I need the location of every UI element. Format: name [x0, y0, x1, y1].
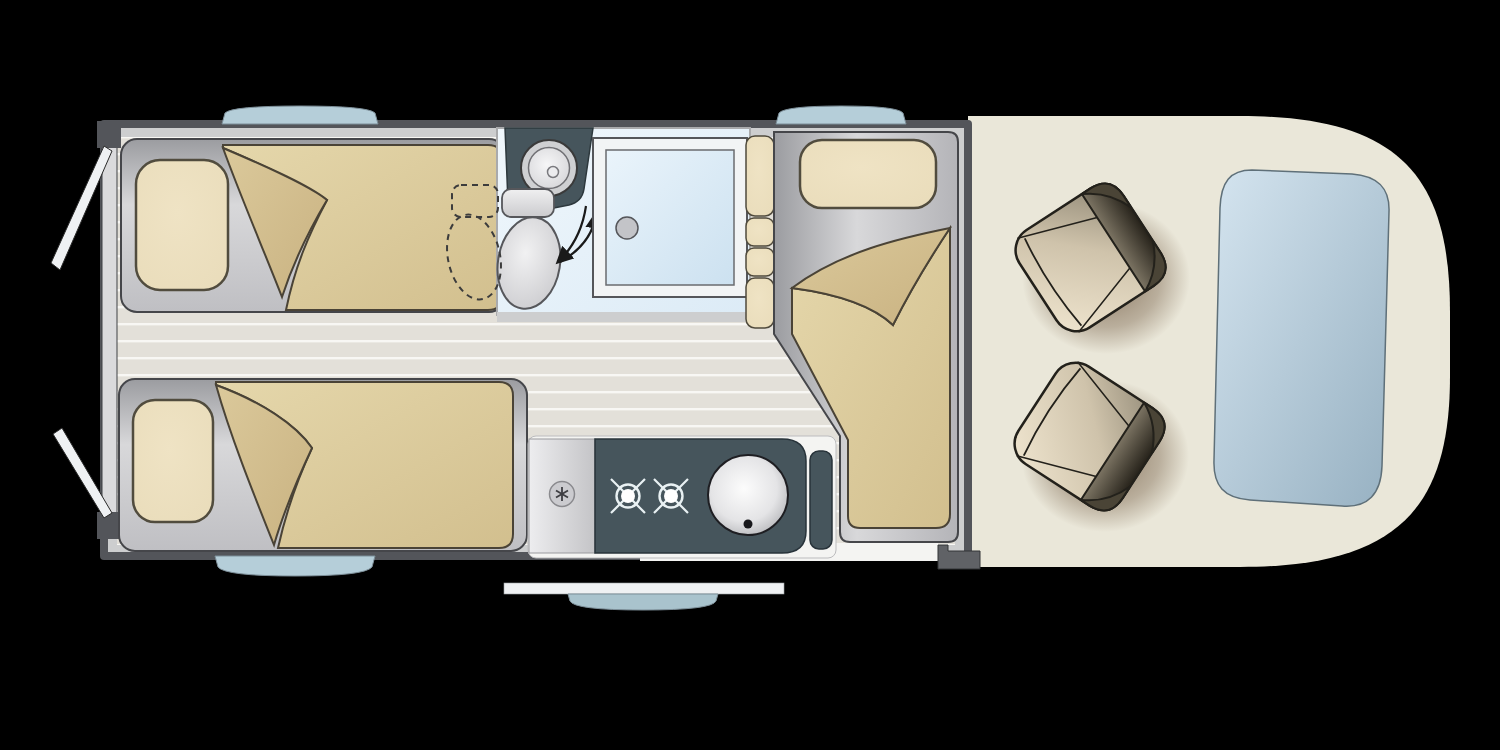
entry-door-panel: [504, 583, 784, 594]
hob-burner: [654, 479, 688, 513]
washbasin-drain: [548, 167, 559, 178]
sink-drain: [744, 520, 753, 529]
body-corner-stub: [97, 512, 121, 539]
cab-area: [968, 116, 1450, 567]
window-top-rear: [222, 106, 378, 124]
body-corner-stub: [97, 121, 121, 148]
pillow: [133, 400, 213, 522]
pillow: [800, 140, 936, 208]
single-bed-bottom: [119, 379, 527, 551]
toilet-tank: [502, 189, 554, 217]
hob-burner: [611, 479, 645, 513]
gas-point-symbol: [550, 482, 575, 507]
single-bed-top: [121, 139, 505, 312]
windshield: [1214, 170, 1389, 506]
floorplan-canvas: [0, 0, 1500, 750]
bathroom-wall-lining: [497, 312, 750, 322]
kitchen: [528, 436, 836, 558]
window-top-front: [776, 106, 906, 124]
campervan-floorplan: [0, 0, 1500, 750]
entry-door-window: [568, 594, 718, 610]
shower-drain: [616, 217, 638, 239]
tall-cabinet: [810, 451, 832, 549]
window-bottom-rear: [215, 556, 375, 576]
habitation-body: [97, 120, 972, 561]
backrest-cushions: [746, 136, 774, 328]
pillow: [136, 160, 228, 290]
rear-wall: [102, 126, 117, 534]
